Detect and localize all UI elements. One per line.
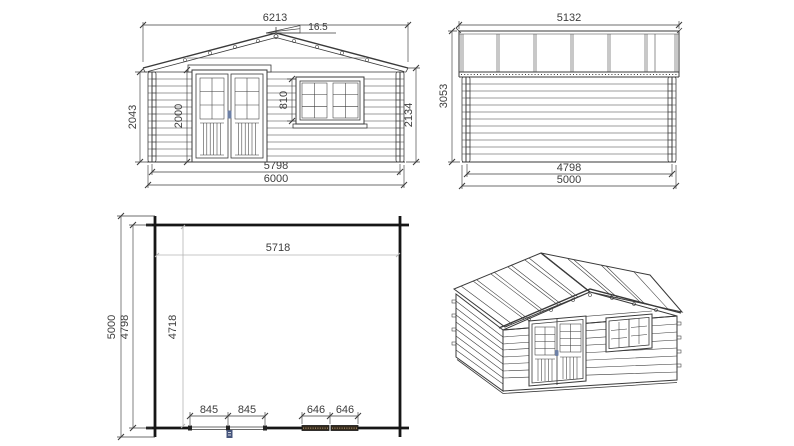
dim-right-height: 2134 [403, 103, 415, 127]
side-corner-log-ends [462, 77, 676, 162]
plan-door-marker [227, 430, 233, 438]
dim-window-left: 646 [307, 404, 325, 416]
dim-wall-depth: 4798 [557, 162, 581, 174]
dim-roof-length: 5132 [557, 12, 581, 24]
plan-dimensions: 5718 4718 4798 5000 845 845 646 646 [106, 213, 361, 440]
cabin-technical-drawing: 16.5 [0, 0, 794, 446]
dim-roof-width: 6213 [263, 12, 287, 24]
perspective-view [452, 253, 682, 394]
plan-window-opening [302, 426, 358, 431]
dim-left-height: 2043 [127, 105, 139, 129]
side-wall-logs [462, 77, 676, 162]
side-roof [456, 28, 682, 77]
dim-base-width: 6000 [264, 173, 288, 185]
dim-total-height: 3053 [438, 84, 450, 108]
dim-inner-depth: 4718 [167, 315, 179, 339]
perspective-window [606, 314, 652, 352]
perspective-left-wall [452, 294, 503, 391]
plan-door-opening [188, 426, 267, 439]
dim-inner-width: 5718 [266, 242, 290, 254]
dim-window-right: 646 [336, 404, 354, 416]
front-window [293, 77, 367, 128]
dim-door-height: 2000 [173, 104, 185, 128]
roof-pitch-label: 16.5 [308, 22, 328, 33]
door-handle-3d [555, 350, 559, 356]
front-roof [143, 27, 408, 72]
door-handle [228, 111, 232, 119]
front-wall-logs [147, 72, 405, 162]
dim-plan-base-depth: 5000 [106, 315, 118, 339]
floor-plan-view: 5718 4718 4798 5000 845 845 646 646 [106, 213, 409, 440]
front-corner-log-ends [148, 72, 404, 162]
front-double-door [188, 65, 271, 162]
dim-wall-width: 5798 [264, 160, 288, 172]
side-elevation-view: 5132 3053 4798 5000 [438, 12, 682, 189]
drawing-canvas: 16.5 [0, 0, 794, 446]
dim-door-left: 845 [200, 404, 218, 416]
plan-interior-lines [155, 225, 400, 428]
dim-door-right: 845 [238, 404, 256, 416]
front-elevation-view: 16.5 [127, 12, 420, 188]
perspective-door [529, 316, 586, 386]
dim-base-depth: 5000 [557, 174, 581, 186]
dim-window-height: 810 [278, 91, 290, 109]
